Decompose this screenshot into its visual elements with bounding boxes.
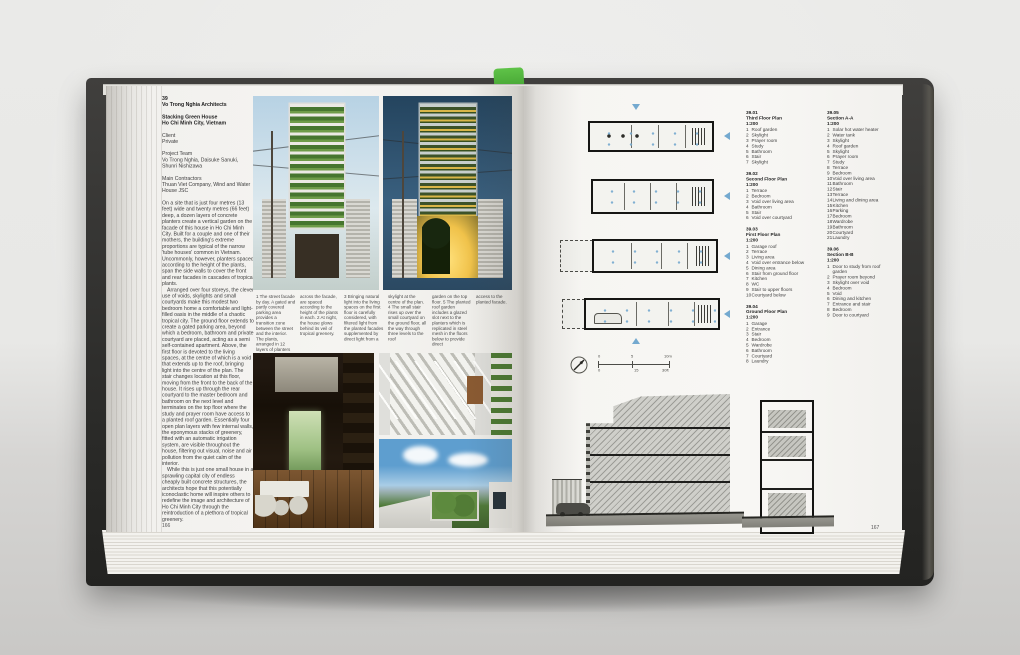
skylight-graphic — [275, 357, 338, 392]
section-marker-icon — [632, 104, 640, 110]
scale-label: 0 — [598, 368, 600, 373]
body-paragraph-2: Arranged over four storeys, the clever u… — [162, 287, 254, 467]
photo-stair — [379, 353, 512, 435]
page-number-left: 166 — [162, 523, 192, 529]
plan-terrace-dashed — [560, 240, 593, 272]
body-text: On a site that is just four metres (13 f… — [162, 200, 254, 523]
plan-outline — [591, 179, 714, 214]
north-and-scale: 0 5 10m 0 15 30ft — [566, 352, 686, 378]
planter-slot-graphic — [491, 353, 512, 435]
scale-label: 30ft — [662, 368, 669, 373]
window-graphic — [493, 492, 505, 510]
scale-bar: 0 5 10m 0 15 30ft — [598, 352, 674, 378]
section-building-mass — [586, 394, 730, 516]
section-marker-icon — [724, 310, 730, 318]
page-number-right: 167 — [871, 525, 901, 531]
section-marker-icon — [632, 338, 640, 344]
legend-39.02: 39.02Second Floor Plan1:2001Terrace2Bedr… — [746, 171, 805, 221]
car-silhouette-graphic — [556, 503, 590, 514]
scale-label: 0 — [598, 354, 600, 359]
body-paragraph-3: While this is just one small house in a … — [162, 467, 254, 523]
cover-fore-edge — [922, 84, 934, 580]
garage-opening-graphic — [295, 234, 339, 279]
photo-roof-garden — [379, 439, 512, 528]
legend-item: 8Laundry — [746, 359, 805, 364]
legend-scale: 1:200 — [746, 315, 805, 320]
planted-facade-edge — [586, 423, 590, 516]
legend-item-text: Laundry — [833, 235, 892, 240]
legend-item-text: Laundry — [752, 359, 806, 364]
plan-gate-dashed — [562, 299, 585, 329]
plan-third-floor — [588, 121, 714, 152]
plan-outline — [584, 298, 720, 330]
floor-slab-line — [762, 488, 812, 490]
section-marker-icon — [724, 192, 730, 200]
plan-outline — [592, 239, 718, 273]
client-value: Private — [162, 139, 254, 145]
plan-key-numbers — [595, 183, 710, 210]
north-arrow-icon — [570, 356, 588, 374]
photo-caption-6: access to the planted facade. — [476, 294, 516, 352]
photo-caption-2: across the facade, are spaced according … — [300, 294, 340, 352]
legend-scale: 1:200 — [746, 121, 805, 126]
section-marker-icon — [724, 252, 730, 260]
legend-items: 1Solar hot water heater2Water tank3Skyli… — [827, 127, 891, 240]
section-marker-icon — [724, 132, 730, 140]
body-paragraph-1: On a site that is just four metres (13 f… — [162, 200, 254, 287]
plan-legends: 39.01Third Floor Plan1:2001Roof garden2S… — [746, 110, 805, 370]
scale-tick — [669, 361, 670, 368]
scale-bar-line — [598, 364, 670, 365]
contractors-value: Thuan Viet Company, Wind and Water House… — [162, 182, 254, 194]
legend-39.06: 39.06Section B-B1:2001Door to study from… — [827, 247, 891, 318]
photo-facade-day — [253, 96, 379, 290]
legend-items: 1Door to study from roof garden2Prayer r… — [827, 264, 891, 318]
plan-key-numbers — [596, 243, 714, 269]
legend-item: 10Courtyard below — [746, 292, 805, 297]
roof-planter-graphic — [430, 490, 479, 521]
legend-item-text: Skylight — [752, 160, 806, 165]
timber-panel-graphic — [467, 376, 483, 404]
plan-key-numbers — [592, 125, 710, 148]
section-room-hatch — [768, 436, 806, 457]
legend-item: 21Laundry — [827, 235, 891, 240]
section-room-hatch — [768, 410, 806, 428]
legend-scale: 1:200 — [827, 121, 891, 126]
captions-row: 1 The street facade by day. A gated and … — [256, 294, 516, 352]
tree-silhouette-graphic — [422, 216, 450, 274]
green-window-graphic — [289, 411, 320, 474]
plan-second-floor — [591, 179, 714, 214]
floor-slab-line — [586, 427, 730, 429]
legend-item: 6Void over courtyard — [746, 215, 805, 220]
photo-caption-4: skylight at the centre of the plan. 4 Th… — [388, 294, 428, 352]
floor-slab-line — [762, 459, 812, 461]
project-text-column: 39 Vo Trong Nghia Architects Stacking Gr… — [162, 96, 254, 523]
neighbour-wall-graphic — [489, 482, 512, 528]
planted-facade-graphic — [290, 104, 344, 228]
scale-label: 15 — [634, 368, 638, 373]
team-value: Vo Trong Nghia, Daisuke Sanuki, Shunri N… — [162, 157, 254, 169]
plan-ground-floor — [562, 298, 720, 330]
photo-caption-1: 1 The street facade by day. A gated and … — [256, 294, 296, 352]
drawing-section-b-b — [760, 400, 814, 534]
legend-items: 1Garage roof2Terrace3Living area4Void ov… — [746, 244, 805, 298]
legend-scale: 1:200 — [746, 182, 805, 187]
cloud-graphic — [448, 453, 488, 467]
project-location: Ho Chi Minh City, Vietnam — [162, 121, 254, 127]
plan-first-floor — [560, 239, 718, 273]
legend-items: 1Terrace2Bedroom3Void over living area4B… — [746, 188, 805, 220]
chairs-graphic — [255, 495, 313, 518]
scale-label: 10m — [664, 354, 672, 359]
floor-slab-line — [586, 481, 730, 483]
slatted-wall-graphic — [478, 199, 503, 279]
scale-label: 5 — [631, 354, 633, 359]
photo-interior-living — [253, 353, 374, 528]
legend-item: 9Door to courtyard — [827, 312, 891, 317]
utility-pole-graphic — [271, 131, 273, 278]
drawing-section-a-a — [552, 392, 738, 532]
page-stack-fore-edge — [102, 530, 905, 574]
scale-tick — [598, 361, 599, 368]
legend-scale: 1:200 — [746, 237, 805, 242]
legend-scale: 1:200 — [827, 257, 891, 262]
legend-item: 1Door to study from roof garden — [827, 264, 891, 275]
planted-facade-lit-graphic — [420, 104, 475, 228]
section-legends: 39.05Section A-A1:2001Solar hot water he… — [827, 110, 891, 324]
utility-pole-graphic — [402, 131, 404, 278]
legend-39.05: 39.05Section A-A1:2001Solar hot water he… — [827, 110, 891, 241]
legend-items: 1Garage2Entrance3Stair4Bedroom5Wardrobe6… — [746, 321, 805, 364]
legend-39.04: 39.04Ground Floor Plan1:2001Garage2Entra… — [746, 304, 805, 364]
scale-tick — [632, 361, 633, 368]
photo-of-open-book: 39 Vo Trong Nghia Architects Stacking Gr… — [0, 0, 1020, 655]
cloud-graphic — [403, 446, 438, 464]
legend-39.01: 39.01Third Floor Plan1:2001Roof garden2S… — [746, 110, 805, 165]
photo-caption-5: garden on the top floor. 5 The planted r… — [432, 294, 472, 352]
slatted-wall-graphic — [262, 199, 286, 279]
photo-facade-night — [383, 96, 512, 290]
floor-slab-line — [762, 431, 812, 433]
legend-39.03: 39.03First Floor Plan1:2001Garage roof2T… — [746, 227, 805, 298]
legend-item: 7Skylight — [746, 160, 805, 165]
legend-items: 1Roof garden2Skylight3Prayer room4Study5… — [746, 127, 805, 165]
slatted-wall-graphic — [346, 199, 370, 279]
plan-key-numbers — [588, 302, 716, 326]
legend-item-text: Void over courtyard — [752, 215, 806, 220]
floor-slab-line — [586, 454, 730, 456]
legend-item-text: Courtyard below — [752, 292, 806, 297]
legend-item-text: Door to courtyard — [833, 312, 892, 317]
photo-caption-3: 3 Bringing natural light into the living… — [344, 294, 384, 352]
legend-item-text: Door to study from roof garden — [833, 264, 892, 275]
ground-line — [742, 515, 834, 527]
architect-name: Vo Trong Nghia Architects — [162, 102, 254, 108]
plan-outline — [588, 121, 714, 152]
